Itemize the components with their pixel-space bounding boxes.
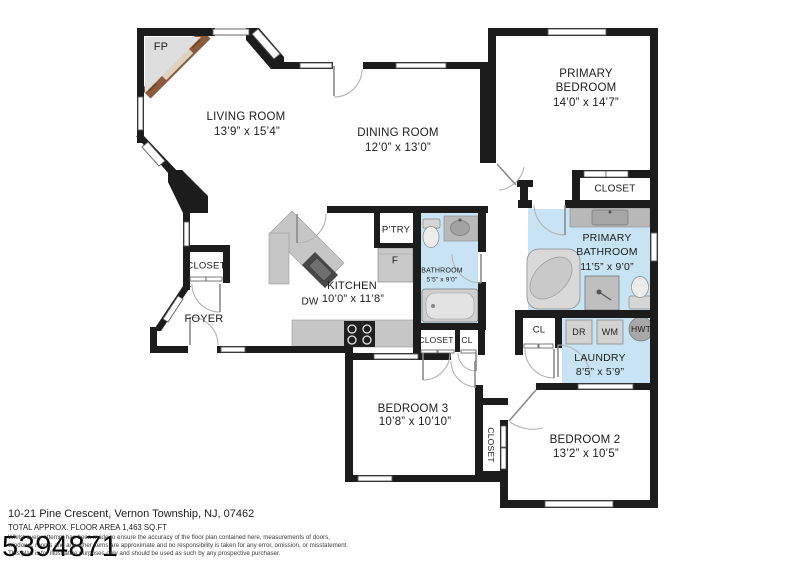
bedroom-closet-label: CLOSET bbox=[486, 427, 496, 462]
primary-bathroom-label: PRIMARY BATHROOM bbox=[566, 231, 648, 259]
bedroom3-dims: 10’8” x 10’10” bbox=[379, 416, 451, 428]
dryer-label: DR bbox=[572, 327, 585, 337]
primary-bedroom-label: PRIMARY BEDROOM bbox=[545, 67, 627, 95]
bedroom2-label: BEDROOM 2 bbox=[550, 434, 621, 446]
primary-bedroom-dims: 14’0” x 14’7” bbox=[553, 97, 619, 109]
pantry-label: P’TRY bbox=[382, 225, 410, 236]
primary-closet-label: CLOSET bbox=[594, 184, 635, 195]
foyer-label: FOYER bbox=[185, 313, 224, 325]
hall-closet-label: CLOSET bbox=[418, 335, 453, 345]
water-heater-label: HWT bbox=[631, 324, 651, 334]
floorplan-page: FP LIVING ROOM 13’9” x 15’4” DINING ROOM… bbox=[0, 0, 800, 565]
dining-room-label: DINING ROOM bbox=[357, 127, 438, 139]
fireplace-label: FP bbox=[154, 41, 168, 53]
bathroom-label: BATHROOM bbox=[421, 268, 463, 275]
primary-bathroom-dims: 11’5” x 9’0” bbox=[580, 261, 634, 273]
label-layer: FP LIVING ROOM 13’9” x 15’4” DINING ROOM… bbox=[0, 0, 800, 565]
dishwasher-label: DW bbox=[301, 297, 318, 308]
disclaimer-line-1: Whilst every attempt has been made to en… bbox=[8, 534, 330, 541]
living-room-dims: 13’9” x 15’4” bbox=[214, 126, 280, 138]
living-room-label: LIVING ROOM bbox=[207, 111, 286, 123]
kitchen-label: KITCHEN bbox=[327, 280, 377, 292]
foyer-closet-label: CLOSET bbox=[186, 261, 225, 272]
hall-cl-label: CL bbox=[461, 335, 472, 345]
fridge-label: F bbox=[392, 256, 398, 267]
bathroom-dims: 5’5” x 9’0” bbox=[427, 277, 458, 284]
bedroom2-dims: 13’2” x 10’5” bbox=[553, 448, 619, 460]
floor-area-line: TOTAL APPROX. FLOOR AREA 1,463 SQ.FT bbox=[8, 523, 167, 532]
laundry-cl-label: CL bbox=[533, 325, 546, 336]
disclaimer-line-3: This plan is for illustrative purposes o… bbox=[8, 550, 280, 557]
address-line: 10-21 Pine Crescent, Vernon Township, NJ… bbox=[8, 508, 254, 520]
laundry-dims: 8’5” x 5’9” bbox=[576, 366, 624, 378]
washer-label: WM bbox=[602, 327, 618, 337]
kitchen-dims: 10’0” x 11’8” bbox=[322, 293, 384, 305]
dining-room-dims: 12’0” x 13’0” bbox=[365, 142, 431, 154]
laundry-label: LAUNDRY bbox=[574, 352, 625, 364]
bedroom3-label: BEDROOM 3 bbox=[378, 403, 449, 415]
disclaimer-line-2: windows, rooms and any other items are a… bbox=[8, 542, 348, 549]
